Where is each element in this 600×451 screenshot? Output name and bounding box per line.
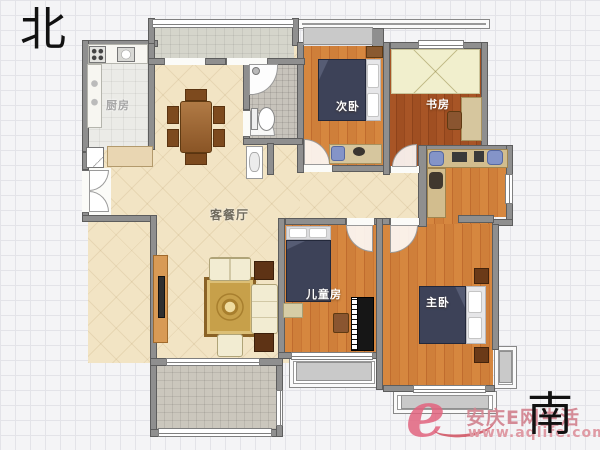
stove-icon (89, 46, 106, 63)
wall-entry-bottom (82, 215, 157, 222)
label-master-bedroom: 主卧 (426, 294, 450, 310)
piano-keys (351, 297, 358, 351)
window-children-south (291, 352, 373, 360)
wall-secondary-bottom (331, 165, 390, 172)
side-table (254, 333, 274, 352)
floor-hallway (300, 168, 422, 225)
dining-chair (185, 89, 207, 101)
fridge-icon (86, 147, 104, 168)
wall-south-balcony-right-upper (276, 362, 283, 392)
window-study (418, 40, 464, 49)
desk-chair-dark (429, 172, 443, 189)
wall-south-balcony-left (150, 358, 157, 437)
window-south-balcony-bottom (158, 428, 272, 437)
label-kitchen: 厨房 (106, 97, 130, 113)
dining-chair (213, 106, 225, 124)
vanity-stool (331, 146, 345, 161)
computer-monitor-icon (452, 152, 467, 162)
sofa-loveseat (209, 257, 251, 281)
label-secondary-bedroom: 次卧 (336, 98, 360, 114)
door-opening-bathroom (243, 110, 250, 137)
kitchen-sink-icon (117, 47, 135, 62)
compass-north-label: 北 (20, 6, 66, 52)
wall-study-top-left (390, 42, 421, 49)
door-opening-master (390, 218, 420, 225)
wall-living-balcony-right (258, 358, 283, 366)
wardrobe (366, 46, 383, 58)
wall-children-bay-left (278, 352, 292, 359)
living-rug (204, 277, 256, 337)
armchair (217, 334, 243, 357)
wall-hallway-end (418, 145, 427, 227)
pillow (289, 228, 307, 238)
toilet-tank (251, 108, 258, 130)
door-opening-study (390, 166, 420, 173)
window-computer-area (505, 174, 513, 204)
pillow (468, 291, 482, 313)
window-north-balcony (152, 19, 294, 28)
side-table (254, 261, 274, 280)
wall-basin-nook-right (267, 143, 274, 175)
study-desk (461, 97, 482, 141)
toilet-bowl (258, 107, 275, 131)
tv-icon (158, 276, 165, 318)
pillow (367, 93, 379, 117)
wall-kitchen-right (148, 40, 155, 150)
office-chair (487, 150, 503, 165)
wall-computer-master-divider (458, 215, 494, 223)
window-sill-master-east (499, 351, 512, 383)
shoe-cabinet (107, 146, 153, 167)
floorplan-canvas: 厨房 客餐厅 次卧 书房 儿童房 主卧 北 南 e 安庆E网生活 www.aql… (0, 0, 600, 450)
label-living-dining: 客餐厅 (210, 206, 249, 223)
label-study: 书房 (426, 96, 450, 112)
wall-children-master-divider (376, 218, 383, 390)
computer-monitor-icon (474, 151, 484, 162)
tatami-platform (391, 49, 480, 94)
dining-chair (167, 129, 179, 147)
compass-south-label: 南 (527, 391, 573, 437)
sofa-three-seat (251, 284, 278, 334)
wall-master-right (492, 224, 499, 350)
study-chair (447, 111, 462, 130)
wall-study-right (481, 42, 488, 152)
window-sill-children (296, 362, 372, 381)
door-opening-children (346, 218, 375, 225)
pillow (468, 317, 482, 339)
nightstand (474, 268, 489, 284)
dining-chair (213, 129, 225, 147)
window-south-balcony-right (276, 390, 283, 426)
floor-north-balcony (152, 26, 294, 62)
wall-hall-south-left (285, 218, 346, 225)
dining-chair (185, 153, 207, 165)
door-opening-secondary (303, 165, 333, 172)
piano-stool (333, 313, 349, 333)
pillow (367, 64, 379, 88)
nightstand (474, 347, 489, 363)
wall-north-balcony-bottom-2 (204, 58, 226, 65)
opening-north-balcony-1 (164, 58, 206, 65)
wall-secondary-study-divider (383, 42, 390, 175)
wall-top-nub (372, 28, 384, 48)
door-opening-entry (82, 170, 89, 213)
floor-south-balcony (156, 364, 277, 431)
office-chair (429, 151, 444, 166)
watermark-logo: e (406, 384, 445, 446)
vanity-items (353, 147, 365, 156)
label-children-room: 儿童房 (306, 286, 342, 302)
pillow (309, 228, 327, 238)
dining-chair (167, 106, 179, 124)
wall-children-left (278, 218, 285, 359)
dining-table (180, 101, 212, 153)
window-seat-secondary-bedroom (303, 27, 373, 45)
sliding-door-south-balcony (166, 358, 260, 366)
kitchen-counter-left (87, 64, 102, 128)
washbasin-bowl (249, 152, 260, 172)
children-rug (283, 303, 303, 318)
shower-head-icon (252, 67, 260, 75)
